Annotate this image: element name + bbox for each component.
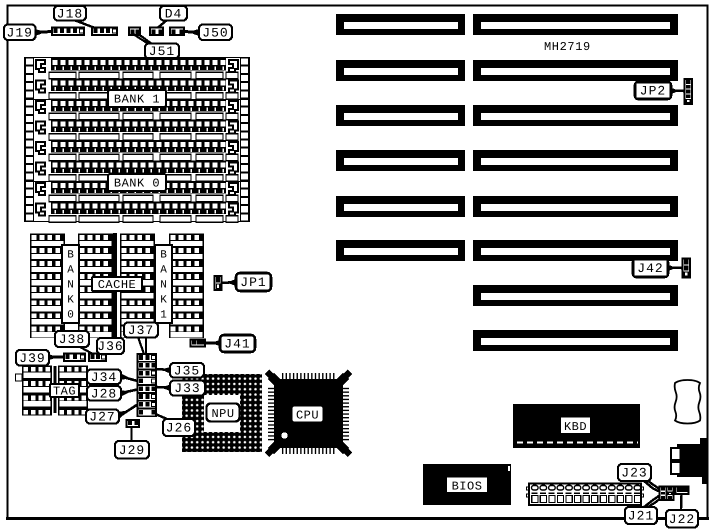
svg-text:A: A — [67, 265, 74, 277]
svg-text:J37: J37 — [128, 323, 154, 338]
svg-text:N: N — [160, 280, 167, 292]
svg-text:N: N — [67, 280, 74, 292]
svg-text:0: 0 — [67, 310, 74, 322]
svg-text:D4: D4 — [165, 6, 183, 21]
svg-text:KBD: KBD — [564, 420, 587, 434]
svg-text:J36: J36 — [97, 339, 123, 354]
svg-text:MH2719: MH2719 — [544, 40, 591, 54]
svg-text:J42: J42 — [637, 261, 663, 276]
svg-text:J23: J23 — [621, 466, 647, 481]
svg-text:K: K — [67, 295, 74, 307]
svg-text:B: B — [67, 250, 74, 262]
svg-text:J35: J35 — [174, 363, 200, 378]
svg-text:J28: J28 — [91, 386, 117, 401]
svg-text:TAG: TAG — [53, 385, 76, 399]
svg-text:J19: J19 — [7, 25, 33, 40]
svg-text:NPU: NPU — [211, 407, 234, 421]
svg-text:J50: J50 — [202, 25, 228, 40]
svg-text:JP2: JP2 — [640, 84, 666, 99]
svg-text:J38: J38 — [59, 332, 85, 347]
svg-text:JP1: JP1 — [240, 275, 266, 290]
svg-text:K: K — [160, 295, 167, 307]
svg-text:CPU: CPU — [296, 409, 319, 423]
svg-text:J39: J39 — [19, 351, 45, 366]
svg-text:J26: J26 — [166, 421, 192, 436]
svg-text:J33: J33 — [174, 381, 200, 396]
svg-text:J41: J41 — [224, 337, 250, 352]
svg-text:1: 1 — [160, 310, 167, 322]
svg-text:J27: J27 — [89, 410, 115, 425]
svg-text:BANK 0: BANK 0 — [114, 177, 160, 191]
svg-text:BIOS: BIOS — [452, 480, 483, 494]
svg-text:CACHE: CACHE — [98, 278, 137, 292]
svg-text:J34: J34 — [91, 370, 117, 385]
svg-text:BANK 1: BANK 1 — [114, 93, 160, 107]
svg-text:J18: J18 — [57, 6, 83, 21]
svg-text:J29: J29 — [119, 443, 145, 458]
svg-text:J22: J22 — [669, 512, 695, 527]
svg-text:A: A — [160, 265, 167, 277]
svg-text:J21: J21 — [628, 509, 654, 524]
svg-text:B: B — [160, 250, 167, 262]
